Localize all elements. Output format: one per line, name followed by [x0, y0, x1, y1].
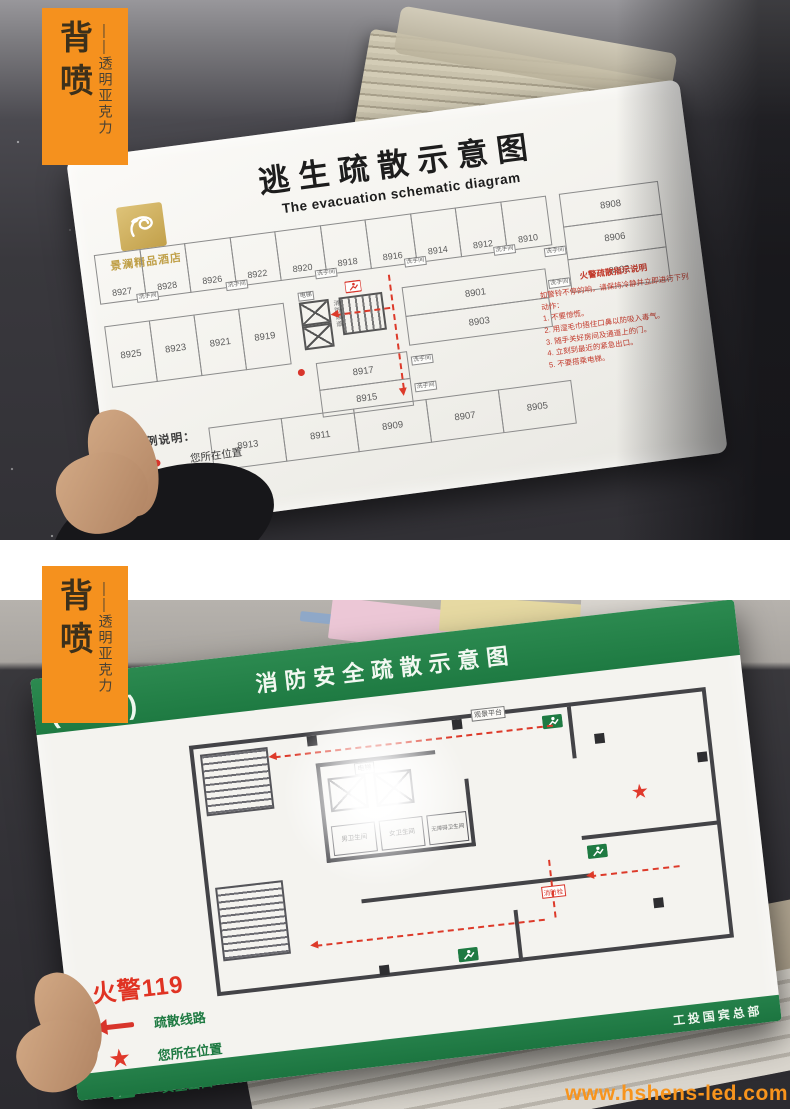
legend-title: 图例说明： [133, 413, 304, 451]
platform-label: 观景平台 [471, 706, 506, 722]
hotel-name: 景澜精品酒店 [103, 248, 188, 275]
room-cell: 8917 [316, 351, 411, 391]
room-cell: 8902 [567, 246, 671, 293]
pillar [379, 965, 390, 976]
fire-safety-sign-board: 消防安全疏散示意图 (5-8-1) 电梯 男卫生间 女卫生间 [30, 600, 781, 1101]
room-cell: 8923 [149, 315, 203, 382]
floor-plan-1: 8927 8928 8926 8922 8920 8918 8916 8914 … [95, 180, 695, 485]
white-roll-object [583, 165, 649, 266]
room-number: 8928 [157, 280, 178, 293]
fire-notice-item: 4. 立刻到最近的紧急出口。 [547, 328, 699, 359]
room-number: 8914 [427, 244, 448, 257]
room-number: 8917 [352, 364, 374, 378]
red-arrow-icon [96, 1022, 136, 1031]
red-dot-icon [136, 457, 177, 469]
exit-icon [142, 498, 183, 516]
evac-route-line [316, 919, 545, 947]
fire-notice-item: 1. 不要惊慌。 [542, 294, 694, 325]
room-number: 8909 [381, 419, 403, 433]
room-number: 8927 [111, 286, 132, 299]
washroom-tag: 洗手间 [411, 354, 434, 366]
pillar [653, 897, 664, 908]
room-cell: 8922 [229, 231, 282, 287]
fire-notice-intro: 如警铃不停的响，请保持冷静并立即进行下列动作： [539, 271, 693, 314]
legend-row: 您所在位置 [136, 436, 307, 473]
badge-sub-text: ——透明亚克力 [99, 20, 113, 165]
floor-plan-2: 电梯 男卫生间 女卫生间 无障碍卫生间 观景平台 消防栓 ★ [189, 687, 734, 996]
stairs-icon [200, 747, 275, 816]
room-cell: 8909 [353, 399, 432, 452]
evacuation-sign-board: 景澜精品酒店 逃生疏散示意图 The evacuation schematic … [66, 79, 728, 532]
evac-route-arrow [264, 752, 277, 761]
evac-route-arrow [306, 941, 319, 950]
room-number: 8910 [517, 232, 538, 245]
room-cell: 8906 [563, 214, 667, 261]
fire-notice-title: 火警疏散指示说明 [537, 256, 689, 289]
evac-route-line [388, 275, 405, 389]
evac-route-arrow [399, 387, 408, 400]
evac-route-arrow [326, 310, 339, 319]
exit-icon [587, 843, 609, 864]
room-number: 8901 [464, 286, 486, 300]
room-cell: 8918 [319, 219, 372, 275]
room-number: 8903 [468, 315, 490, 329]
room-cell: 8912 [455, 202, 508, 258]
sign1-title-en: The evacuation schematic diagram [182, 157, 620, 229]
room-cell: 8911 [281, 408, 360, 461]
red-arrow-icon [139, 481, 179, 490]
legend-label: 紧急出口 [195, 490, 239, 510]
room-number: 8919 [254, 330, 276, 344]
washroom-tag: 洗手间 [493, 244, 516, 256]
wall [582, 820, 720, 840]
room-cell: 8926 [184, 237, 237, 293]
washroom-tag: 洗手间 [225, 279, 248, 291]
room-cell: 8914 [410, 208, 463, 264]
badge-back-print-top: 背喷 ——透明亚克力 [42, 8, 128, 165]
acrylic-tray [393, 5, 677, 101]
room-number: 8902 [608, 263, 630, 277]
room-number: 8918 [337, 256, 358, 269]
room-cell: 8927 [94, 249, 147, 305]
badge-main-text: 背喷 [58, 578, 91, 723]
sign1-title-block: 逃生疏散示意图 The evacuation schematic diagram [176, 110, 620, 229]
legend-row: 紧急出口 [141, 480, 312, 517]
washroom-tag: 洗手间 [544, 245, 567, 257]
washroom-tag: 洗手间 [404, 256, 427, 268]
room-cell: 8925 [104, 320, 158, 387]
room-row-top: 8927 8928 8926 8922 8920 8918 8916 8914 … [95, 196, 553, 305]
pillar [452, 719, 463, 730]
elevator-icon [299, 299, 332, 327]
room-cell: 8913 [208, 418, 287, 471]
elevator-tag: 电梯 [297, 291, 314, 302]
room-number: 8905 [526, 400, 548, 414]
acrylic-pile [345, 29, 676, 231]
room-cell: 8901 [402, 268, 550, 317]
room-number: 8916 [382, 250, 403, 263]
fire-notice-item: 5. 不要搭乘电梯。 [548, 340, 700, 371]
acrylic-sheet-stack [339, 1, 701, 270]
room-cell: 8928 [139, 243, 192, 299]
evac-route-line [335, 307, 391, 316]
room-number: 8922 [247, 268, 268, 281]
room-cell: 8903 [405, 297, 553, 346]
room-number: 8913 [237, 438, 259, 452]
fire-notice-item: 3. 随手关好房间及通道上的门。 [545, 317, 697, 348]
legend-label: 疏散方向 [192, 468, 236, 488]
room-cell: 8915 [319, 378, 414, 418]
you-are-here-star: ★ [630, 778, 651, 805]
wall [514, 910, 524, 962]
badge-main-text: 背喷 [58, 20, 91, 165]
washroom-tag: 洗手间 [136, 291, 159, 303]
hotel-logo-icon [116, 202, 167, 252]
sign1-legend: 图例说明： 您所在位置 疏散方向 紧急出口 [133, 413, 312, 516]
room-cell: 8916 [364, 213, 417, 269]
exit-icon [458, 947, 480, 968]
room-number: 8908 [599, 197, 621, 211]
room-number: 8925 [120, 347, 142, 361]
watermark-url: www.hshens-led.com [565, 1082, 788, 1106]
exit-icon [344, 279, 362, 299]
pillar [594, 733, 605, 744]
elevator-icon [302, 323, 335, 351]
room-cell: 8919 [238, 303, 292, 370]
pillar [697, 751, 708, 762]
legend-label: 您所在位置 [189, 445, 243, 467]
room-number: 8906 [604, 230, 626, 244]
washroom-tag: 洗手间 [414, 381, 437, 393]
stairs-icon [338, 292, 387, 335]
you-are-here-dot [297, 369, 305, 377]
room-number: 8926 [202, 274, 223, 287]
room-number: 8911 [309, 428, 331, 442]
stairs-icon [215, 880, 291, 961]
room-cell: 8908 [559, 181, 663, 228]
room-number: 8920 [292, 262, 313, 275]
corridor-label: 消防通道 [331, 299, 344, 328]
room-cell: 8921 [193, 309, 247, 376]
room-cell: 8910 [500, 196, 553, 252]
legend-label: 疏散线路 [153, 1007, 207, 1032]
wall [567, 706, 577, 758]
room-cell: 8905 [498, 380, 577, 433]
washroom-tag: 洗手间 [315, 268, 338, 280]
room-cell: 8920 [274, 225, 327, 281]
room-number: 8907 [454, 409, 476, 423]
room-number: 8915 [356, 391, 378, 405]
washroom-tag: 洗手间 [548, 277, 571, 289]
sign1-title-cn: 逃生疏散示意图 [176, 110, 618, 212]
evac-route-arrow [582, 871, 595, 880]
evac-route-line [590, 865, 680, 877]
legend-row: 疏散方向 [139, 458, 310, 495]
room-number: 8921 [209, 336, 231, 350]
fire-notice-item: 2. 用湿毛巾捂住口鼻以防吸入毒气。 [544, 305, 696, 336]
room-cell: 8907 [425, 389, 504, 442]
room-number: 8912 [472, 238, 493, 251]
badge-sub-text: ——透明亚克力 [99, 578, 113, 723]
room-number: 8923 [164, 341, 186, 355]
hotel-logo: 景澜精品酒店 [97, 199, 189, 274]
fire-notice: 火警疏散指示说明 如警铃不停的响，请保持冷静并立即进行下列动作： 1. 不要惊慌… [537, 256, 700, 372]
badge-back-print-bottom: 背喷 ——透明亚克力 [42, 566, 128, 723]
